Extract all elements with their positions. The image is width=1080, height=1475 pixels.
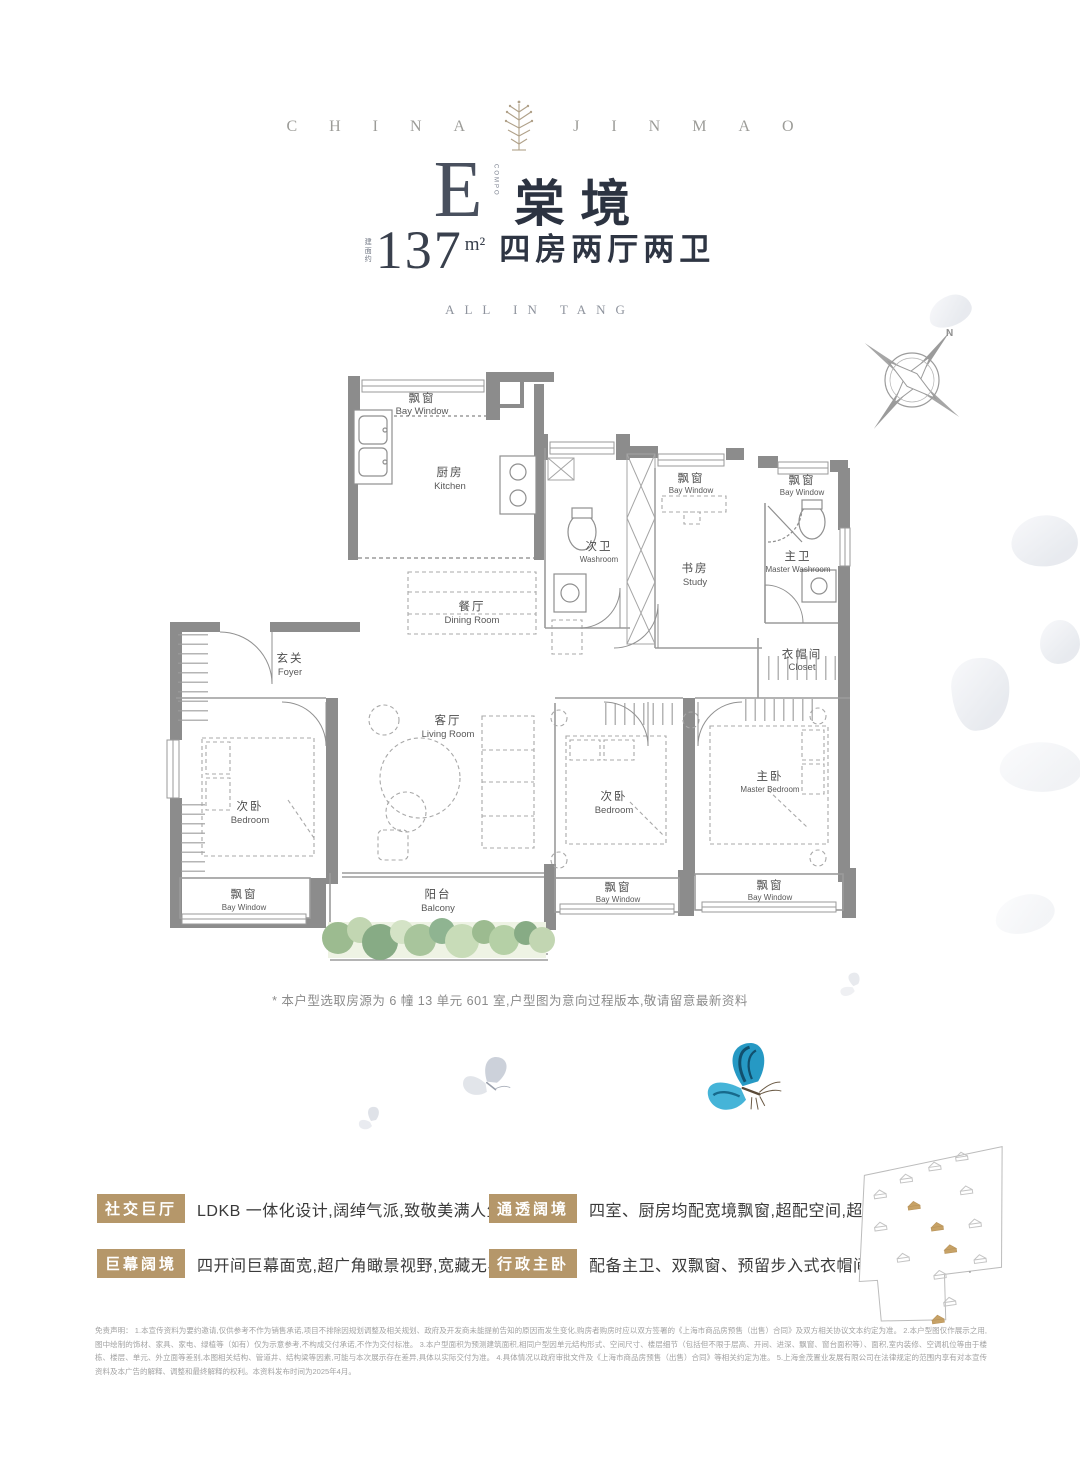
brand-jinmao: JINMAO bbox=[573, 118, 825, 136]
room-label-bay-study-en: Bay Window bbox=[669, 486, 714, 495]
small-butterfly-icon bbox=[356, 1105, 388, 1131]
room-label-bedroom-left-cn: 次卧 bbox=[237, 799, 264, 813]
fixtures bbox=[354, 410, 836, 612]
furniture bbox=[202, 496, 828, 868]
room-label-bay-right-en: Bay Window bbox=[748, 893, 793, 902]
room-label-bay-masterwash-cn: 飘窗 bbox=[789, 473, 816, 487]
room-label-bay-left-en: Bay Window bbox=[222, 903, 267, 912]
room-label-bay-left-cn: 飘窗 bbox=[231, 887, 258, 901]
room-label-balcony-cn: 阳台 bbox=[425, 887, 452, 901]
floor-plan: 飘窗 Bay Window 厨房 Kitchen 次卫 Washroom 餐厅 … bbox=[150, 370, 870, 980]
room-label-living-cn: 客厅 bbox=[435, 713, 462, 727]
feature-badge: 通透阔境 bbox=[489, 1194, 577, 1223]
room-label-kitchen-cn: 厨房 bbox=[437, 466, 464, 479]
blue-butterfly-icon bbox=[694, 1034, 792, 1128]
room-label-bay-right-cn: 飘窗 bbox=[757, 878, 784, 892]
area-row: 建面约 137 m² 四房两厅两卫 bbox=[0, 224, 1080, 272]
room-label-masterwash-cn: 主卫 bbox=[785, 550, 812, 563]
room-label-bedroom-mid-en: Bedroom bbox=[595, 805, 634, 816]
room-label-bedroom-mid-cn: 次卧 bbox=[601, 789, 628, 803]
feature-badge: 社交巨厅 bbox=[97, 1194, 185, 1223]
feature-badge: 行政主卧 bbox=[489, 1249, 577, 1278]
disclaimer-text: 免责声明： 1.本宣传资料为要约邀请,仅供参考不作为销售承诺,项目不排除因规划调… bbox=[95, 1324, 987, 1378]
brand-row: CHINA JINMAO bbox=[0, 98, 1080, 156]
poster-page: CHINA JINMAO E COMPO 棠境 建面约 bbox=[0, 0, 1080, 1475]
petal-decoration bbox=[1009, 511, 1080, 572]
doors bbox=[220, 585, 803, 746]
room-label-closet-en: Closet bbox=[789, 662, 816, 673]
brand-china: CHINA bbox=[286, 118, 497, 136]
room-label-bedroom-left-en: Bedroom bbox=[231, 815, 270, 826]
room-label-bay-mid-en: Bay Window bbox=[596, 895, 641, 904]
site-plan-thumbnail bbox=[835, 1119, 1033, 1341]
room-label-living-en: Living Room bbox=[422, 729, 475, 740]
room-label-bay-mid-cn: 飘窗 bbox=[605, 880, 632, 894]
room-label-study-cn: 书房 bbox=[682, 562, 709, 575]
feature-item: 社交巨厅 LDKB 一体化设计,阔绰气派,致敬美满人生 bbox=[97, 1194, 489, 1223]
room-label-bay-kitchen-en: Bay Window bbox=[396, 406, 449, 417]
area-unit: m² bbox=[465, 234, 485, 256]
room-label-bay-kitchen-cn: 飘窗 bbox=[409, 391, 436, 405]
room-label-foyer-cn: 玄关 bbox=[277, 651, 304, 665]
room-label-foyer-en: Foyer bbox=[278, 667, 302, 678]
tree-logo-icon bbox=[499, 98, 539, 156]
room-label-closet-cn: 衣帽间 bbox=[782, 647, 823, 661]
room-label-washroom-en: Washroom bbox=[580, 555, 619, 564]
floor-plan-svg: 飘窗 Bay Window 厨房 Kitchen 次卫 Washroom 餐厅 … bbox=[150, 370, 870, 970]
petal-decoration bbox=[992, 890, 1058, 938]
room-label-master-cn: 主卧 bbox=[757, 770, 784, 783]
unit-type-vertical-text: COMPO bbox=[492, 164, 498, 197]
area-value: 137 bbox=[376, 229, 463, 272]
compass-icon: N bbox=[856, 320, 968, 438]
room-label-bay-masterwash-en: Bay Window bbox=[780, 488, 825, 497]
room-label-dining-cn: 餐厅 bbox=[459, 599, 486, 613]
room-label-master-en: Master Bedroom bbox=[740, 785, 799, 794]
balcony-greenery bbox=[322, 917, 555, 960]
compass-north-label: N bbox=[946, 328, 953, 339]
petal-decoration bbox=[948, 655, 1013, 733]
plan-note: * 本户型选取房源为 6 幢 13 单元 601 室,户型图为意向过程版本,敬请… bbox=[150, 990, 870, 1009]
room-label-balcony-en: Balcony bbox=[421, 903, 455, 914]
room-label-kitchen-en: Kitchen bbox=[434, 481, 466, 492]
room-label-dining-en: Dining Room bbox=[445, 615, 500, 626]
area-prefix: 建面约 bbox=[365, 239, 374, 265]
gray-butterfly-icon bbox=[455, 1047, 522, 1108]
petal-decoration bbox=[998, 739, 1080, 796]
feature-item: 巨幕阔境 四开间巨幕面宽,超广角瞰景视野,宽藏无界风光 bbox=[97, 1249, 489, 1278]
layout-text: 四房两厅两卫 bbox=[499, 224, 715, 269]
feature-text: 四开间巨幕面宽,超广角瞰景视野,宽藏无界风光 bbox=[197, 1252, 537, 1276]
room-label-bay-study-cn: 飘窗 bbox=[678, 471, 705, 485]
petal-decoration bbox=[1040, 620, 1080, 664]
subtitle: ALL IN TANG bbox=[0, 302, 1080, 318]
unit-type-letter: E bbox=[434, 156, 483, 224]
feature-text: LDKB 一体化设计,阔绰气派,致敬美满人生 bbox=[197, 1197, 503, 1221]
room-label-washroom-cn: 次卫 bbox=[586, 539, 613, 553]
room-label-masterwash-en: Master Washroom bbox=[765, 565, 830, 574]
room-label-study-en: Study bbox=[683, 577, 708, 588]
feature-badge: 巨幕阔境 bbox=[97, 1249, 185, 1278]
